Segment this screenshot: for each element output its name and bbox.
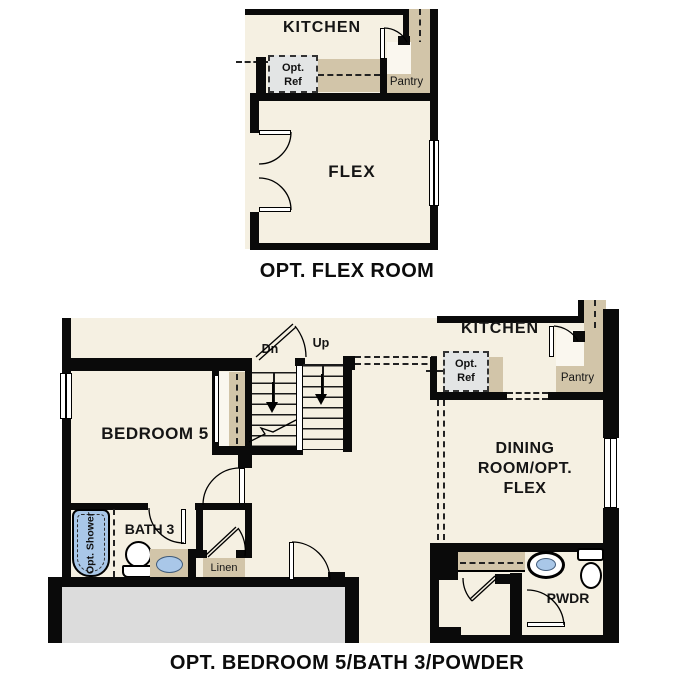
window xyxy=(60,373,72,419)
dashed-line xyxy=(318,74,380,76)
wall xyxy=(578,300,584,317)
flex-room-label: FLEX xyxy=(297,162,407,182)
wall xyxy=(236,550,252,558)
wall xyxy=(603,508,619,643)
pantry-floor xyxy=(387,42,411,74)
wall xyxy=(195,503,252,510)
bedroom5-plan-caption: OPT. BEDROOM 5/BATH 3/POWDER xyxy=(117,652,577,675)
toilet xyxy=(577,548,604,561)
stairs-up-label: Up xyxy=(303,336,339,350)
wall xyxy=(495,574,510,584)
dashed-line xyxy=(460,562,523,564)
closet-floor xyxy=(219,372,229,446)
wall xyxy=(510,573,522,643)
kitchen-label: KITCHEN xyxy=(440,320,560,338)
wall xyxy=(430,357,437,400)
opt-ref-label-line2: Ref xyxy=(445,371,487,385)
dining-room-label: FLEX xyxy=(425,480,625,498)
wall xyxy=(238,446,252,468)
wall xyxy=(256,93,437,101)
toilet xyxy=(125,541,152,568)
wall xyxy=(62,358,252,371)
wall xyxy=(212,446,303,455)
hall-door-leaf xyxy=(289,542,294,580)
wall xyxy=(437,392,507,400)
stair-divider xyxy=(296,364,303,450)
dashed-line xyxy=(594,300,596,328)
wall xyxy=(250,243,438,250)
dashed-line xyxy=(507,392,548,394)
wall xyxy=(548,392,603,400)
wall xyxy=(603,309,619,438)
pantry-door-leaf xyxy=(380,28,385,59)
opt-ref-box: Opt. Ref xyxy=(268,55,318,93)
wall xyxy=(573,331,585,342)
dashed-line xyxy=(355,356,437,358)
wall xyxy=(245,364,252,456)
flex-plan-caption: OPT. FLEX ROOM xyxy=(217,260,477,283)
wall xyxy=(345,577,359,643)
powder-door-leaf xyxy=(527,622,565,627)
dashed-line xyxy=(355,363,437,365)
wall xyxy=(245,9,406,15)
bath3-label: BATH 3 xyxy=(112,521,187,537)
wall xyxy=(430,9,438,140)
kitchen-label: KITCHEN xyxy=(257,19,387,37)
wall xyxy=(328,572,345,580)
wall xyxy=(430,543,439,643)
down-arrow-icon xyxy=(272,382,274,404)
sink xyxy=(156,556,183,573)
dining-room-label: ROOM/OPT. xyxy=(425,460,625,478)
opt-ref-label-line1: Opt. xyxy=(445,357,487,371)
flex-door-leaf xyxy=(259,130,291,135)
stairs-down-label: Dn xyxy=(252,342,288,356)
kitchen-counter xyxy=(489,357,503,392)
floorplan-image: KITCHEN Opt. Ref Pantry FLEX OPT. FLEX R… xyxy=(0,0,687,687)
pantry-label: Pantry xyxy=(383,76,430,88)
dashed-line xyxy=(236,374,238,444)
toilet xyxy=(580,562,602,589)
flex-door-leaf xyxy=(259,207,291,212)
cased-opening xyxy=(214,376,219,442)
wall xyxy=(430,635,619,643)
wall xyxy=(343,364,352,452)
wall xyxy=(256,57,266,93)
opt-shower-label: Opt. Shower xyxy=(74,511,108,575)
wall xyxy=(398,36,410,45)
dashed-line xyxy=(113,509,115,577)
wall xyxy=(48,577,359,587)
wall xyxy=(196,509,203,553)
opt-ref-label-line2: Ref xyxy=(270,75,316,89)
pantry-label: Pantry xyxy=(552,372,603,384)
dining-room-label: DINING xyxy=(425,440,625,458)
down-arrow-icon xyxy=(315,394,327,405)
wall xyxy=(48,577,62,643)
linen-label: Linen xyxy=(203,562,245,574)
bedroom5-label: BEDROOM 5 xyxy=(75,424,235,444)
bedroom5-door-leaf xyxy=(239,468,245,505)
window xyxy=(429,140,439,206)
opt-ref-box: Opt. Ref xyxy=(443,351,489,392)
down-arrow-icon xyxy=(321,374,323,396)
down-arrow-icon xyxy=(266,402,278,413)
sink-basin xyxy=(536,558,556,571)
wall xyxy=(250,93,259,133)
pantry-door-leaf xyxy=(549,326,554,357)
garage-floor xyxy=(62,587,345,643)
tub-opt-shower: Opt. Shower xyxy=(72,509,110,577)
powder-room-label: PWDR xyxy=(533,590,603,606)
wall xyxy=(193,550,207,558)
opt-ref-label-line1: Opt. xyxy=(270,61,316,75)
dashed-line xyxy=(507,398,548,400)
